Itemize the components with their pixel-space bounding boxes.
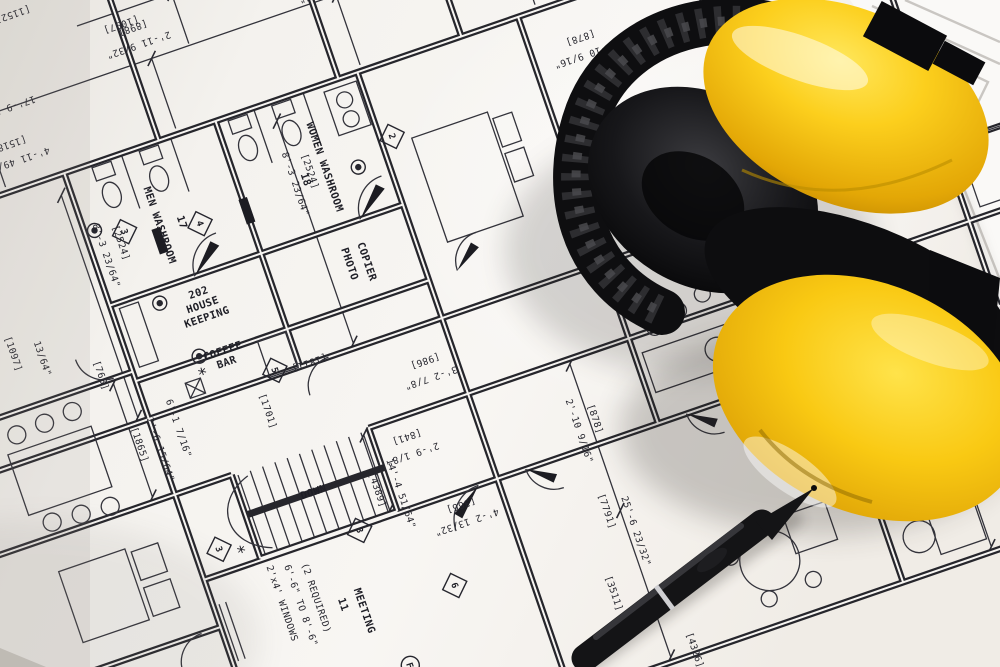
- photo-of-blueprints: MEN WASHROOM 17 WOMEN WASHROOM 18 202 HO…: [0, 0, 1000, 667]
- pen-tip: [811, 485, 817, 491]
- scene-canvas: MEN WASHROOM 17 WOMEN WASHROOM 18 202 HO…: [0, 0, 1000, 667]
